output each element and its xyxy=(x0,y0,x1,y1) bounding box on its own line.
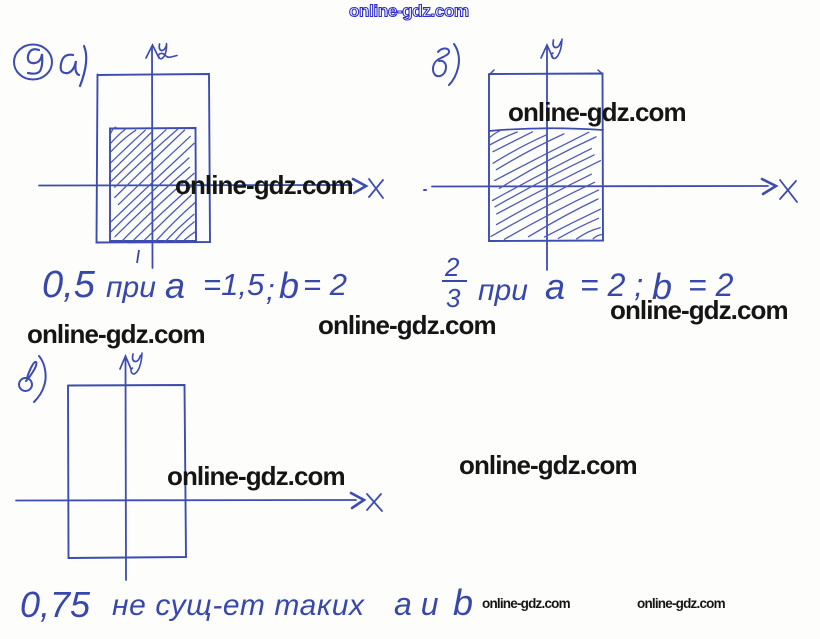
svg-text:online-gdz.com: online-gdz.com xyxy=(610,295,788,325)
svg-text:= 2: = 2 xyxy=(303,267,347,302)
svg-text:online-gdz.com: online-gdz.com xyxy=(349,2,469,21)
svg-text:b: b xyxy=(279,265,299,306)
svg-text:3: 3 xyxy=(446,283,461,313)
svg-text:a и: a и xyxy=(394,586,439,622)
svg-text:online-gdz.com: online-gdz.com xyxy=(637,596,726,611)
svg-text:при: при xyxy=(106,271,156,304)
svg-text:online-gdz.com: online-gdz.com xyxy=(482,596,571,611)
svg-text:2: 2 xyxy=(444,252,460,282)
svg-text:a: a xyxy=(165,265,185,306)
svg-text:online-gdz.com: online-gdz.com xyxy=(167,461,345,491)
svg-text:online-gdz.com: online-gdz.com xyxy=(27,319,205,349)
svg-text:online-gdz.com: online-gdz.com xyxy=(508,97,686,127)
svg-text:0,75: 0,75 xyxy=(20,584,91,625)
svg-text:b: b xyxy=(453,582,473,623)
svg-text:a: a xyxy=(545,266,565,307)
svg-text:не сущ-ет таких: не сущ-ет таких xyxy=(112,589,365,622)
svg-text:0,5: 0,5 xyxy=(42,264,96,306)
svg-text:online-gdz.com: online-gdz.com xyxy=(459,450,637,480)
svg-text:online-gdz.com: online-gdz.com xyxy=(318,310,496,340)
svg-text:при: при xyxy=(478,274,528,307)
svg-text:=1,5: =1,5 xyxy=(203,267,265,302)
svg-text:;: ; xyxy=(266,272,275,307)
svg-text:online-gdz.com: online-gdz.com xyxy=(175,170,353,200)
